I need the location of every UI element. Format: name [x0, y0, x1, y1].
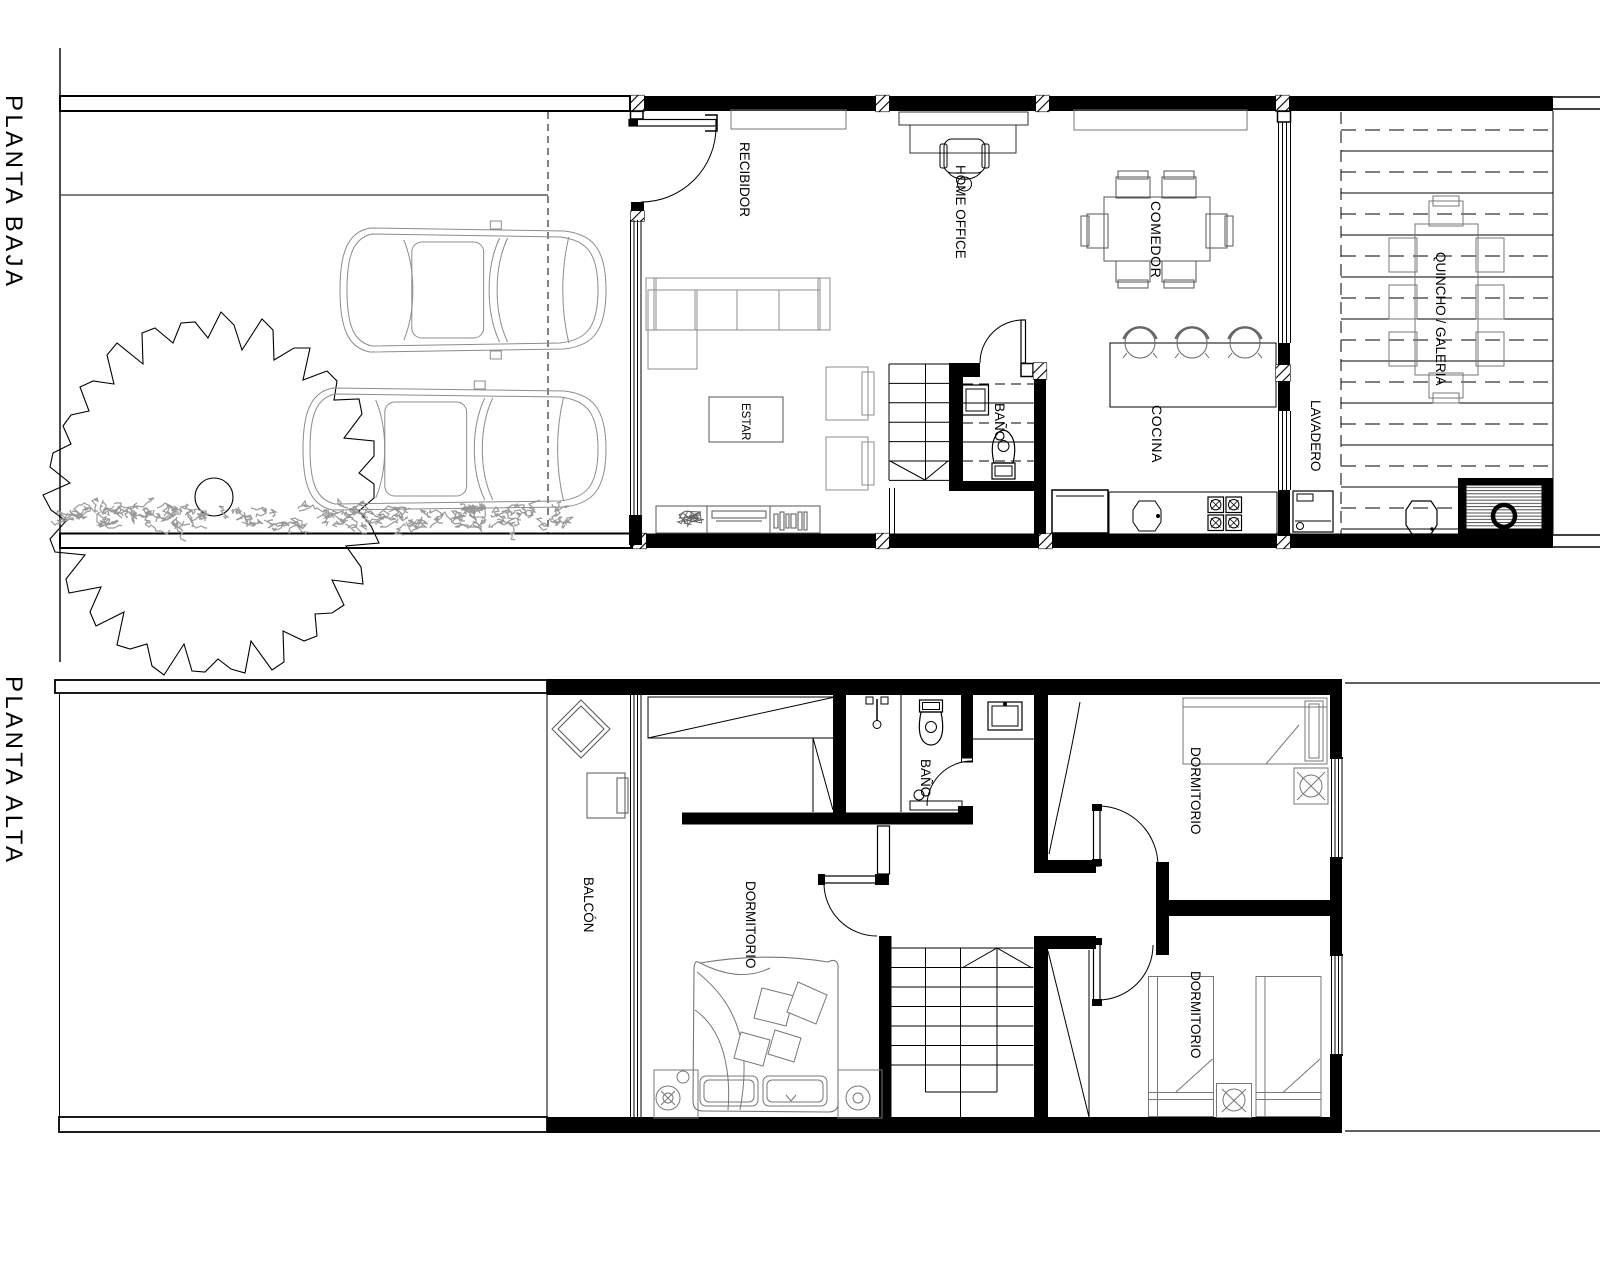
svg-text:ESTAR: ESTAR	[739, 403, 751, 441]
svg-text:COMEDOR: COMEDOR	[1148, 201, 1164, 278]
svg-text:QUINCHO / GALERIA: QUINCHO / GALERIA	[1433, 252, 1448, 386]
svg-text:PLANTA ALTA: PLANTA ALTA	[0, 676, 27, 865]
svg-text:HOME OFFICE: HOME OFFICE	[953, 165, 968, 259]
svg-text:BAÑO: BAÑO	[992, 403, 1007, 441]
svg-text:PLANTA BAJA: PLANTA BAJA	[0, 95, 27, 289]
svg-text:DORMITORIO: DORMITORIO	[1188, 971, 1203, 1059]
svg-text:DORMITORIO: DORMITORIO	[743, 881, 758, 969]
svg-text:RECIBIDOR: RECIBIDOR	[737, 142, 752, 217]
svg-text:BALCÓN: BALCÓN	[581, 877, 596, 933]
svg-text:BAÑO: BAÑO	[918, 759, 933, 797]
svg-text:COCINA: COCINA	[1149, 405, 1165, 463]
svg-text:DORMITORIO: DORMITORIO	[1188, 747, 1203, 835]
svg-text:LAVADERO: LAVADERO	[1308, 400, 1323, 472]
